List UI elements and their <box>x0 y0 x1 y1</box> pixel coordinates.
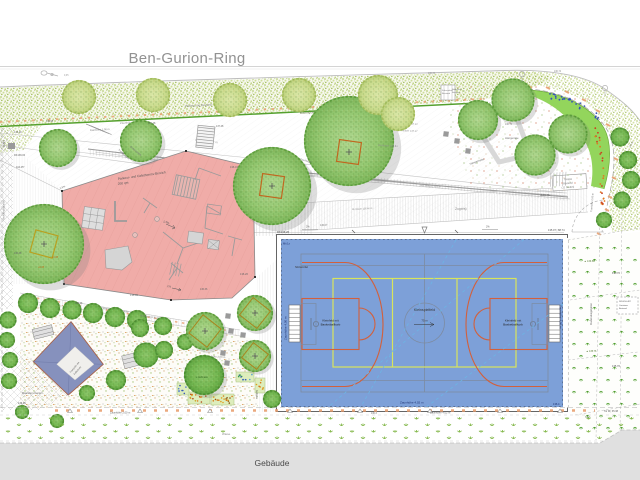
svg-text:136.36: 136.36 <box>130 293 138 297</box>
svg-text:Bekristale: Bekristale <box>452 88 462 91</box>
svg-text:135.76: 135.76 <box>612 271 620 275</box>
svg-text:▲ 136.19: ▲ 136.19 <box>584 260 595 263</box>
svg-text:136.07: 136.07 <box>320 224 328 227</box>
svg-text:Zaunhöhe 4,02 m: Zaunhöhe 4,02 m <box>430 411 450 415</box>
svg-text:+0,45: +0,45 <box>52 256 59 259</box>
svg-text:▲ 135.76: ▲ 135.76 <box>586 350 597 353</box>
svg-text:136.98: 136.98 <box>46 121 54 123</box>
svg-text:136.6: 136.6 <box>585 417 591 419</box>
svg-text:Basketballkorb: Basketballkorb <box>321 323 341 327</box>
svg-text:Ruderalvegetation: Ruderalvegetation <box>589 303 593 325</box>
svg-text:Mäandern-Garten: Mäandern-Garten <box>22 391 43 395</box>
svg-text:Sitzwürfel: Sitzwürfel <box>295 265 308 269</box>
svg-text:Bestand: Bestand <box>442 92 451 95</box>
svg-text:Bestand: Bestand <box>452 91 461 94</box>
svg-text:+0,45: +0,45 <box>38 266 45 269</box>
svg-text:136.3: 136.3 <box>371 413 377 415</box>
svg-text:136.36: 136.36 <box>18 402 26 405</box>
svg-text:136.74: 136.74 <box>554 71 562 73</box>
svg-text:Hängeriale: Hängeriale <box>505 136 519 140</box>
svg-text:Kleinspielfeld: Kleinspielfeld <box>414 308 435 312</box>
svg-text:Zaunhöhe 2,00 m: Zaunhöhe 2,00 m <box>110 411 130 415</box>
svg-text:Aufmass: Aufmass <box>255 390 258 400</box>
svg-text:Grundstücksgrenze: Grundstücksgrenze <box>2 200 5 221</box>
svg-text:Zaunhöhe 4,02 m: Zaunhöhe 4,02 m <box>400 401 424 405</box>
svg-text:DIN 450-487: DIN 450-487 <box>619 301 632 303</box>
svg-text:Gebäude: Gebäude <box>255 458 290 468</box>
svg-text:136.06: 136.06 <box>14 131 22 134</box>
svg-text:136.38: 136.38 <box>75 302 83 305</box>
svg-text:136.38: 136.38 <box>14 252 22 255</box>
svg-text:75 m: 75 m <box>421 319 428 323</box>
svg-text:116.45°: 116.45° <box>16 166 24 169</box>
svg-text:136.74: 136.74 <box>428 73 436 75</box>
svg-text:136.36: 136.36 <box>200 288 208 291</box>
svg-text:Zaunhöhe 4,00 m: Zaunhöhe 4,00 m <box>284 316 288 340</box>
svg-text:135.76: 135.76 <box>612 364 620 368</box>
svg-text:DK136.00: DK136.00 <box>14 154 26 157</box>
svg-text:Zaunhöhe 4,00 m: Zaunhöhe 4,00 m <box>559 305 563 329</box>
svg-text:Container: Container <box>619 304 628 307</box>
svg-text:Ben-Gurion-Ring: Ben-Gurion-Ring <box>128 50 245 67</box>
svg-text:136.06: 136.06 <box>2 140 5 148</box>
svg-text:135.07 | 88.74: 135.07 | 88.74 <box>548 228 565 232</box>
svg-text:Tor M | 35.38: Tor M | 35.38 <box>604 410 619 413</box>
svg-text:Wiese: Wiese <box>222 432 231 436</box>
svg-text:Mit 1x: Mit 1x <box>283 242 291 246</box>
svg-text:0,35: 0,35 <box>64 75 69 77</box>
svg-text:137.48: 137.48 <box>216 125 224 128</box>
svg-text:136.26: 136.26 <box>240 272 248 276</box>
svg-text:136.74: 136.74 <box>505 124 513 126</box>
svg-text:136.4: 136.4 <box>553 402 560 406</box>
svg-text:+ Aufmass: + Aufmass <box>196 376 208 379</box>
svg-text:Bestand: Bestand <box>619 307 627 310</box>
svg-text:137.48: 137.48 <box>148 122 156 125</box>
svg-text:Basketballkorb: Basketballkorb <box>503 323 523 327</box>
